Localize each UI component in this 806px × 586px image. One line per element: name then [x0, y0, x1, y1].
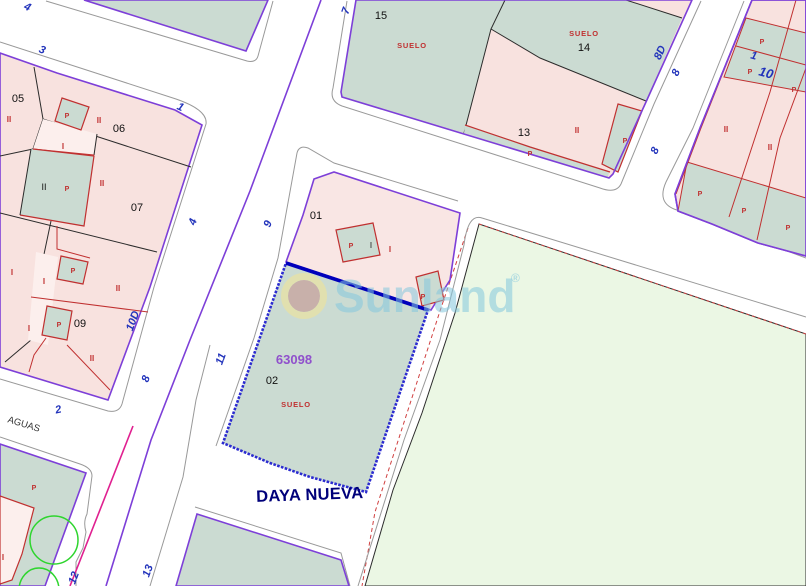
svg-text:09: 09 [74, 318, 86, 330]
svg-text:02: 02 [266, 375, 278, 387]
svg-text:II: II [7, 115, 11, 124]
svg-text:P: P [71, 268, 76, 275]
svg-text:I: I [11, 268, 13, 277]
svg-text:P: P [742, 208, 747, 215]
svg-text:II: II [41, 182, 46, 192]
svg-text:®: ® [511, 271, 520, 285]
svg-text:P: P [528, 151, 533, 158]
svg-text:P: P [349, 243, 354, 250]
svg-text:05: 05 [12, 93, 24, 105]
svg-text:P: P [421, 294, 426, 301]
svg-text:P: P [57, 322, 62, 329]
svg-text:SUELO: SUELO [281, 400, 311, 409]
svg-text:I: I [370, 241, 372, 250]
svg-text:II: II [724, 125, 728, 134]
svg-text:15: 15 [375, 10, 387, 22]
svg-text:P: P [760, 39, 765, 46]
svg-text:II: II [768, 143, 772, 152]
svg-text:P: P [32, 485, 37, 492]
svg-text:SUELO: SUELO [569, 29, 599, 38]
svg-text:I: I [2, 553, 4, 562]
svg-text:63098: 63098 [276, 352, 312, 367]
svg-text:SUELO: SUELO [397, 41, 427, 50]
svg-text:II: II [575, 126, 579, 135]
svg-text:II: II [90, 354, 94, 363]
svg-text:I: I [28, 324, 30, 333]
svg-text:II: II [116, 284, 120, 293]
svg-text:II: II [100, 179, 104, 188]
svg-text:01: 01 [310, 210, 322, 222]
svg-text:14: 14 [578, 42, 590, 54]
svg-text:P: P [65, 186, 70, 193]
svg-text:DAYA NUEVA: DAYA NUEVA [256, 484, 364, 506]
svg-text:P: P [792, 87, 797, 94]
svg-text:P: P [698, 191, 703, 198]
svg-text:07: 07 [131, 202, 143, 214]
svg-text:P: P [65, 113, 70, 120]
svg-text:II: II [97, 116, 101, 125]
svg-text:P: P [748, 69, 753, 76]
svg-text:P: P [623, 138, 628, 145]
svg-text:I: I [62, 142, 64, 151]
svg-text:I: I [389, 245, 391, 254]
svg-text:13: 13 [518, 127, 530, 139]
svg-text:06: 06 [113, 123, 125, 135]
svg-text:P: P [786, 225, 791, 232]
svg-text:I: I [43, 277, 45, 286]
